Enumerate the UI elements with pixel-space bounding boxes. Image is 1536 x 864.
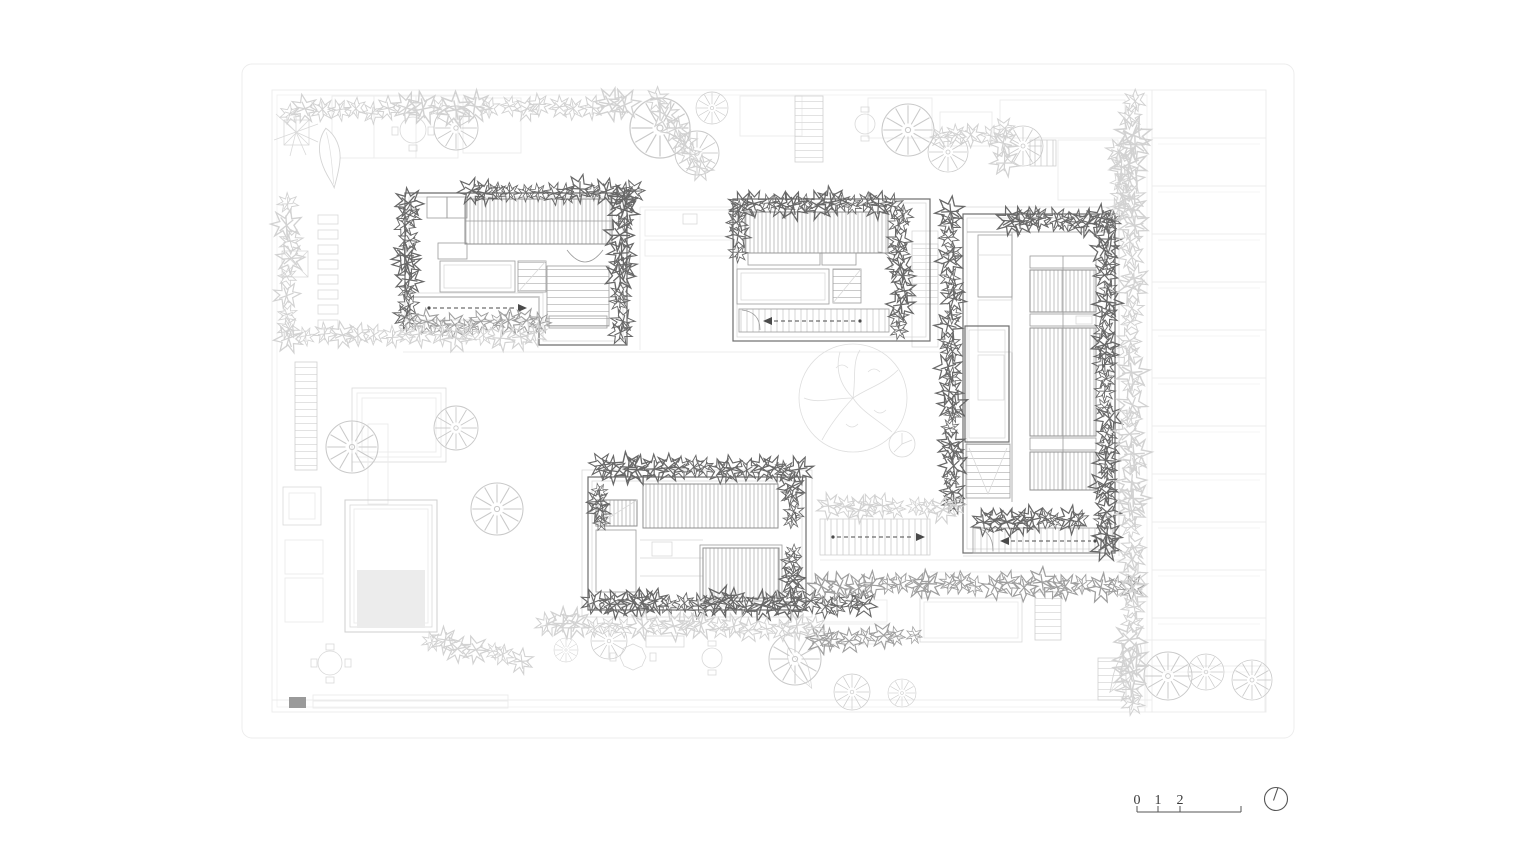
service-units-column: [318, 215, 338, 329]
fan-tree-icon: [471, 483, 523, 535]
plant-icon: [1119, 514, 1144, 539]
plant-icon: [902, 569, 934, 602]
plant-icon: [937, 226, 959, 249]
sheet-border: [242, 64, 1294, 738]
rooms-a: [427, 197, 467, 259]
plan-sheet: 0 1 2: [0, 0, 1536, 864]
fan-tree-icon: [882, 104, 934, 156]
plant-icon: [587, 450, 616, 480]
plant-icon: [293, 324, 318, 349]
roof-panels-c: [1030, 256, 1096, 490]
plant-icon: [328, 320, 357, 350]
plant-icon: [977, 570, 1012, 605]
roof-deck-b: [745, 212, 888, 253]
left-garden-rooms: [283, 487, 323, 622]
plant-icon: [886, 626, 906, 647]
scale-label-1: 1: [1155, 793, 1162, 808]
entry-corridor-c: [973, 528, 1113, 553]
small-tree: [889, 431, 915, 457]
fan-tree-icon: [1232, 660, 1272, 700]
plant-icon: [499, 95, 520, 117]
plant-icon: [888, 571, 912, 594]
table-round-2: [855, 107, 875, 141]
plant-icon: [531, 610, 562, 640]
fan-tree-icon: [554, 638, 578, 662]
fan-tree-icon: [1144, 652, 1192, 700]
roof-deck-d1: [643, 484, 778, 528]
plant-icon: [718, 610, 749, 641]
site-plan-drawing: 0 1 2: [0, 0, 1536, 864]
entry-corridor-b: [739, 309, 889, 332]
plant-icon: [1091, 401, 1127, 436]
south-pool: [920, 598, 1022, 642]
stair-between-b-c: [912, 231, 938, 347]
scale-label-0: 0: [1134, 793, 1141, 808]
plant-icon: [1033, 505, 1059, 531]
top-terrace-rooms: [332, 96, 1125, 200]
plant-icon: [941, 303, 964, 326]
plant-icon: [343, 96, 369, 121]
south-stair-1: [1035, 592, 1061, 640]
stair-c: [966, 444, 1010, 498]
fan-tree-icon: [696, 92, 728, 124]
plant-icon: [271, 280, 303, 311]
room-d-left: [596, 530, 636, 592]
plant-icon: [524, 89, 555, 120]
plant-icon: [866, 489, 898, 522]
rooms-d-mid: [640, 540, 703, 576]
pool-b: [737, 269, 829, 304]
plant-icon: [547, 93, 573, 120]
terraced-steps: [352, 388, 446, 504]
plant-icon: [419, 630, 444, 655]
pond-leaf-top: [316, 127, 344, 189]
direction-arrow-a: [427, 304, 527, 312]
plant-icon: [373, 93, 402, 123]
rooms-c: [978, 235, 1012, 400]
plant-icon: [935, 281, 971, 317]
landings-b: [748, 253, 856, 265]
garden-stair-ladder: [295, 362, 317, 470]
arc-door-a: [567, 250, 603, 262]
fan-tree-icon: [434, 406, 478, 450]
roof-deck-a: [465, 199, 612, 244]
scale-label-2: 2: [1177, 793, 1184, 808]
neighbor-strip-building: [1152, 90, 1266, 712]
stair-a2: [547, 266, 609, 326]
plant-icon: [276, 302, 299, 326]
large-courtyard-tree: [799, 344, 907, 452]
plant-icon: [278, 267, 297, 287]
plant-icon: [607, 320, 634, 346]
pool-a: [440, 261, 515, 292]
north-arrow-icon: [1265, 788, 1288, 811]
plant-icon: [780, 498, 808, 526]
plant-icon: [412, 307, 442, 338]
scale-bar: 0 1 2: [1134, 793, 1242, 812]
fan-tree-icon: [834, 674, 870, 710]
building-northwest: [405, 193, 627, 345]
table-round-3: [311, 644, 351, 683]
utility-box: [289, 697, 306, 708]
table-round-4: [702, 641, 722, 675]
palm-tree-planter: [274, 108, 318, 156]
core-c: [965, 326, 1009, 442]
reflecting-pond: [345, 500, 437, 632]
fan-tree-icon: [888, 679, 916, 707]
planter-strip: [313, 695, 508, 708]
ramp-connector: [820, 519, 930, 555]
garden-bench: [646, 636, 684, 647]
